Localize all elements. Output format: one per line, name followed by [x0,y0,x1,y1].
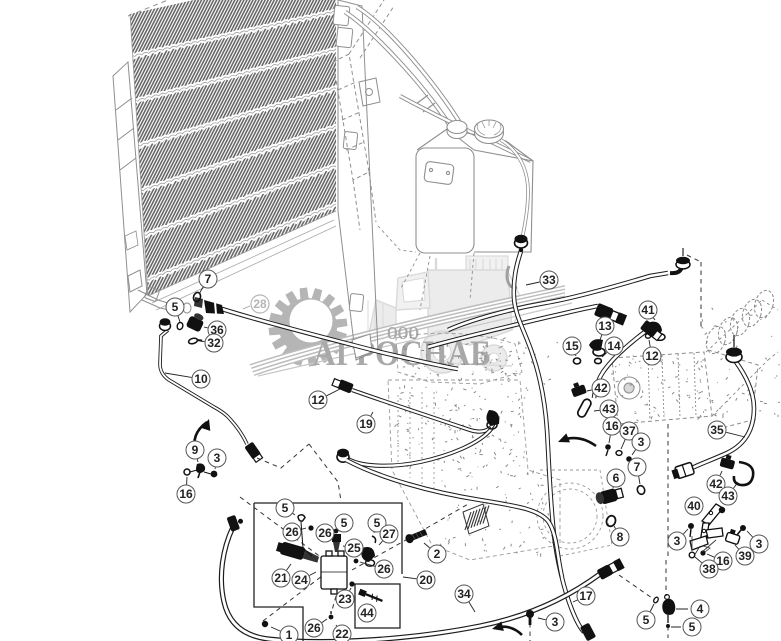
svg-text:16: 16 [179,487,193,501]
svg-text:24: 24 [294,573,308,587]
svg-text:22: 22 [335,627,349,641]
svg-text:3: 3 [214,451,221,465]
svg-text:3: 3 [552,615,559,629]
svg-text:12: 12 [311,393,325,407]
svg-text:41: 41 [641,303,655,317]
svg-text:5: 5 [282,501,289,515]
svg-text:26: 26 [307,621,321,635]
svg-text:10: 10 [194,372,208,386]
svg-text:7: 7 [634,460,641,474]
svg-text:7: 7 [205,272,212,286]
svg-text:42: 42 [594,381,608,395]
svg-text:17: 17 [579,589,593,603]
svg-text:4: 4 [697,602,704,616]
svg-text:27: 27 [382,527,396,541]
svg-text:14: 14 [607,339,621,353]
svg-text:43: 43 [602,402,616,416]
svg-text:26: 26 [318,526,332,540]
svg-text:40: 40 [687,499,701,513]
svg-text:35: 35 [710,423,724,437]
svg-text:43: 43 [721,489,735,503]
svg-text:38: 38 [702,562,716,576]
svg-text:8: 8 [617,530,624,544]
svg-text:23: 23 [338,592,352,606]
svg-text:13: 13 [598,319,612,333]
svg-text:25: 25 [347,541,361,555]
svg-text:34: 34 [457,587,471,601]
svg-text:26: 26 [285,525,299,539]
svg-text:6: 6 [613,471,620,485]
svg-text:20: 20 [419,573,433,587]
svg-text:5: 5 [689,620,696,634]
svg-text:12: 12 [645,349,659,363]
svg-text:44: 44 [360,606,374,620]
svg-text:28: 28 [253,297,267,311]
svg-text:21: 21 [274,571,288,585]
svg-text:5: 5 [374,516,381,530]
svg-text:32: 32 [207,336,221,350]
svg-text:5: 5 [172,300,179,314]
svg-text:26: 26 [377,562,391,576]
svg-text:1: 1 [286,628,293,641]
svg-text:2: 2 [434,547,441,561]
svg-text:3: 3 [674,534,681,548]
svg-text:16: 16 [716,554,730,568]
svg-text:39: 39 [738,549,752,563]
svg-text:3: 3 [756,537,763,551]
svg-text:33: 33 [542,273,556,287]
svg-text:5: 5 [643,613,650,627]
svg-text:16: 16 [605,419,619,433]
svg-text:15: 15 [565,339,579,353]
svg-text:19: 19 [359,417,373,431]
svg-text:9: 9 [192,443,199,457]
svg-text:5: 5 [341,516,348,530]
svg-text:3: 3 [638,435,645,449]
